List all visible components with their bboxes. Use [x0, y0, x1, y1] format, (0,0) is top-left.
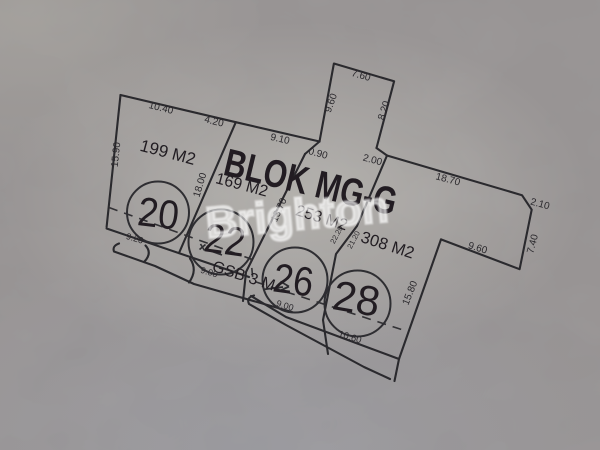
svg-text:20: 20	[135, 188, 181, 239]
svg-text:28: 28	[329, 271, 383, 325]
